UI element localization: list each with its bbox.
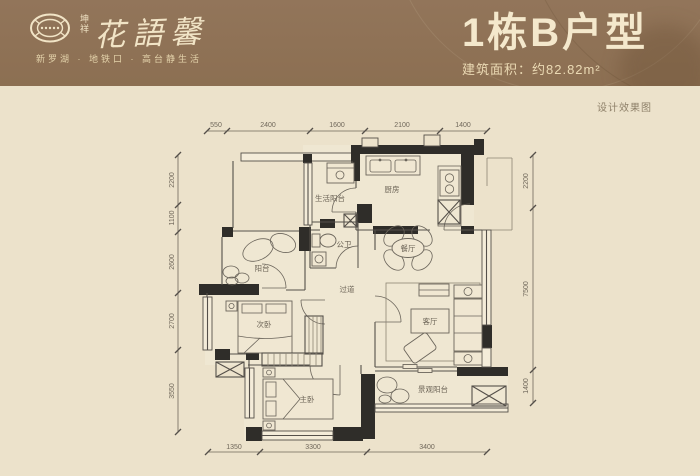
room-label-guest-bath: 公卫 — [337, 240, 352, 249]
dim-top: 2400 — [260, 122, 276, 129]
room-label-master-bedroom: 主卧 — [300, 394, 315, 404]
dim-bottom: 3300 — [305, 444, 321, 451]
dim-right: 1400 — [523, 378, 530, 394]
dim-left: 2600 — [169, 254, 176, 270]
room-label-balcony: 阳台 — [255, 263, 270, 273]
dim-right: 2200 — [523, 173, 530, 189]
floor-plan-drawing: 550 2400 1600 2100 1400 1350 3300 3400 2… — [0, 0, 700, 476]
room-label-dining: 餐厅 — [401, 244, 416, 253]
room-label-second-bedroom: 次卧 — [257, 319, 272, 329]
dim-top: 2100 — [394, 122, 410, 129]
dim-top: 1400 — [455, 122, 471, 129]
dim-bottom: 3400 — [419, 444, 435, 451]
dim-left: 1100 — [169, 210, 176, 225]
room-label-view-balcony: 景观阳台 — [418, 384, 448, 394]
room-label-corridor: 过道 — [340, 284, 355, 294]
dim-top: 1600 — [329, 122, 345, 129]
dim-left: 3550 — [169, 383, 176, 399]
floor-plan-page: 坤 祥 花語馨 新罗湖 · 地铁口 · 高台静生活 1栋B户型 建筑面积：约82… — [0, 0, 700, 476]
dim-bottom: 1350 — [226, 444, 242, 451]
dim-right: 7500 — [523, 281, 530, 297]
room-label-living-room: 客厅 — [423, 316, 438, 326]
washer-icon — [327, 163, 354, 183]
room-label-living-balcony: 生活阳台 — [315, 193, 345, 203]
room-label-kitchen: 厨房 — [385, 184, 400, 194]
dim-left: 2700 — [169, 313, 176, 329]
dim-top: 550 — [210, 122, 222, 129]
bath-sink-icon — [312, 252, 326, 266]
toilet-icon — [312, 234, 320, 247]
sofa-icon — [454, 285, 482, 365]
dim-left: 2200 — [169, 172, 176, 188]
